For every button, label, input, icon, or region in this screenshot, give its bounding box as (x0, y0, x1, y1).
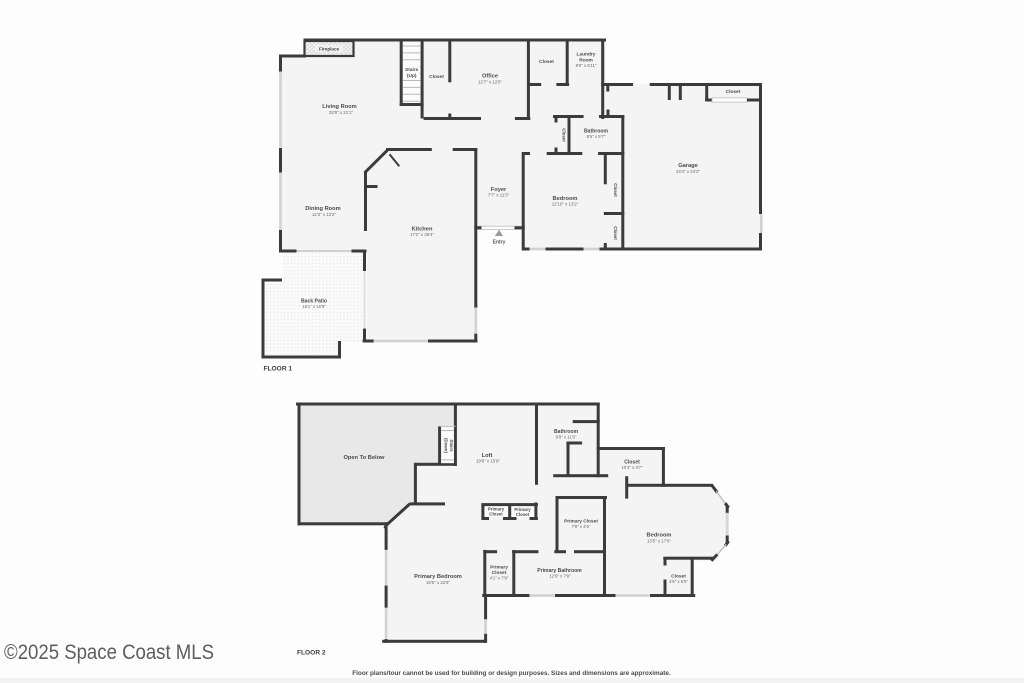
svg-text:13'5" x 17'6": 13'5" x 17'6" (647, 539, 672, 544)
svg-text:4'5" x 5'6": 4'5" x 5'6" (669, 579, 688, 584)
svg-text:Closet: Closet (429, 74, 444, 80)
svg-text:10'3" x 3'7": 10'3" x 3'7" (621, 465, 643, 470)
svg-text:9'9" x 11'5": 9'9" x 11'5" (556, 435, 577, 440)
svg-text:16'5" x 22'6": 16'5" x 22'6" (426, 580, 451, 585)
svg-text:Stairs: Stairs (449, 439, 454, 452)
svg-text:(Down): (Down) (443, 438, 448, 453)
svg-text:Fireplace: Fireplace (319, 47, 340, 52)
svg-text:©2025 Space Coast MLS: ©2025 Space Coast MLS (4, 641, 214, 664)
svg-text:12'7" x 12'5": 12'7" x 12'5" (478, 80, 503, 85)
svg-text:Closet: Closet (613, 183, 618, 197)
svg-text:7'7" x 11'3": 7'7" x 11'3" (488, 193, 510, 198)
svg-text:12'3" x 12'2": 12'3" x 12'2" (312, 212, 337, 217)
svg-text:16'1" x 16'9": 16'1" x 16'9" (302, 304, 326, 309)
svg-text:Primary: Primary (490, 565, 508, 571)
svg-text:7'9" x 4'5": 7'9" x 4'5" (572, 524, 591, 529)
svg-text:Closet: Closet (516, 512, 530, 517)
svg-text:FLOOR 2: FLOOR 2 (297, 650, 326, 657)
svg-text:Floor plans/tour cannot be use: Floor plans/tour cannot be used for buil… (352, 670, 671, 677)
svg-text:4'1" x 7'9": 4'1" x 7'9" (490, 576, 509, 581)
svg-text:17'2" x 36'4": 17'2" x 36'4" (410, 232, 435, 237)
svg-text:32'8" x 21'1": 32'8" x 21'1" (329, 110, 354, 115)
svg-text:12'9" x 7'9": 12'9" x 7'9" (549, 574, 571, 579)
svg-text:Closet: Closet (489, 512, 503, 517)
svg-text:9'0" x 6'11": 9'0" x 6'11" (576, 63, 597, 68)
svg-text:Open To Below: Open To Below (344, 455, 386, 461)
svg-text:Laundry: Laundry (577, 52, 596, 58)
svg-text:12'10" x 13'2": 12'10" x 13'2" (552, 202, 579, 207)
svg-text:(Up): (Up) (407, 73, 417, 79)
svg-text:Stairs: Stairs (405, 67, 419, 73)
svg-text:Closet: Closet (562, 128, 567, 142)
svg-text:19'8" x 15'9": 19'8" x 15'9" (476, 459, 501, 464)
svg-text:Closet: Closet (726, 89, 741, 95)
svg-text:FLOOR 1: FLOOR 1 (264, 366, 293, 373)
svg-text:8'6" x 5'7": 8'6" x 5'7" (587, 134, 606, 139)
svg-text:Closet: Closet (613, 226, 618, 240)
svg-text:Closet: Closet (539, 59, 554, 65)
svg-text:Entry: Entry (493, 240, 506, 246)
svg-text:24'4" x 24'2": 24'4" x 24'2" (676, 169, 701, 174)
